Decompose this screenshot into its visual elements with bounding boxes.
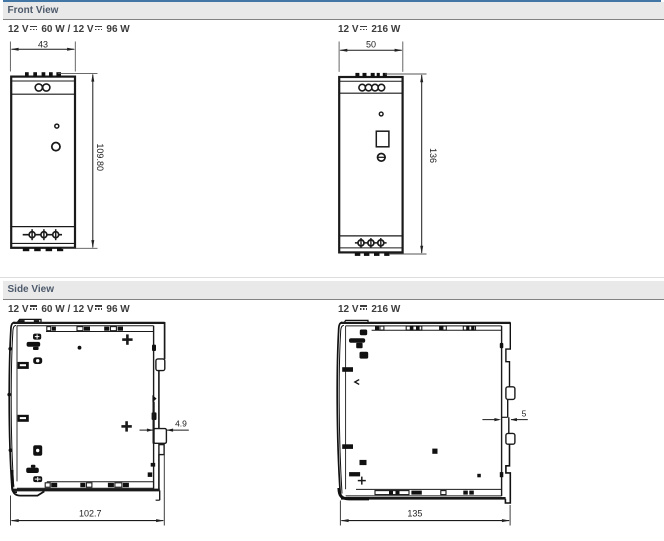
svg-text:4.9: 4.9 <box>175 419 187 429</box>
svg-text:5: 5 <box>522 408 527 418</box>
svg-text:109.80: 109.80 <box>95 143 105 171</box>
svg-text:50: 50 <box>366 40 376 50</box>
svg-text:136: 136 <box>428 148 438 163</box>
svg-text:43: 43 <box>38 39 48 49</box>
svg-text:135: 135 <box>407 509 422 519</box>
svg-text:102.7: 102.7 <box>79 509 102 519</box>
